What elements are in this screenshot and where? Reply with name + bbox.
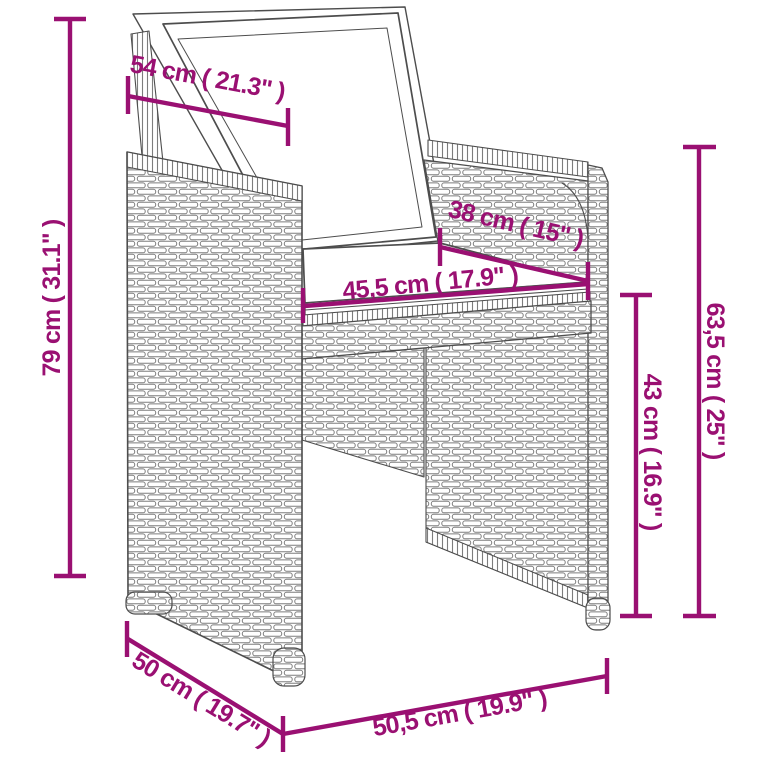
dimension-label-overall-width: 50,5 cm ( 19.9" ) — [370, 684, 549, 742]
dimension-label-overall-height: 79 cm ( 31.1" ) — [38, 219, 66, 376]
foot-front-left — [273, 648, 305, 686]
dimension-label-seat-to-arm-height: 43 cm ( 16.9" ) — [638, 374, 666, 531]
dimension-label-backrest-height: 63,5 cm ( 25" ) — [701, 303, 729, 460]
underseat-back-wall — [302, 348, 424, 477]
dimension-diagram: 54 cm ( 21.3" ) 79 cm ( 31.1" ) 38 cm ( … — [0, 0, 767, 767]
dimension-label-overall-depth: 50 cm ( 19.7" ) — [127, 646, 276, 752]
right-side-panel — [588, 165, 608, 625]
foot-back-left — [126, 592, 172, 614]
diagram-svg: 54 cm ( 21.3" ) 79 cm ( 31.1" ) 38 cm ( … — [0, 0, 767, 767]
foot-right — [586, 598, 610, 630]
